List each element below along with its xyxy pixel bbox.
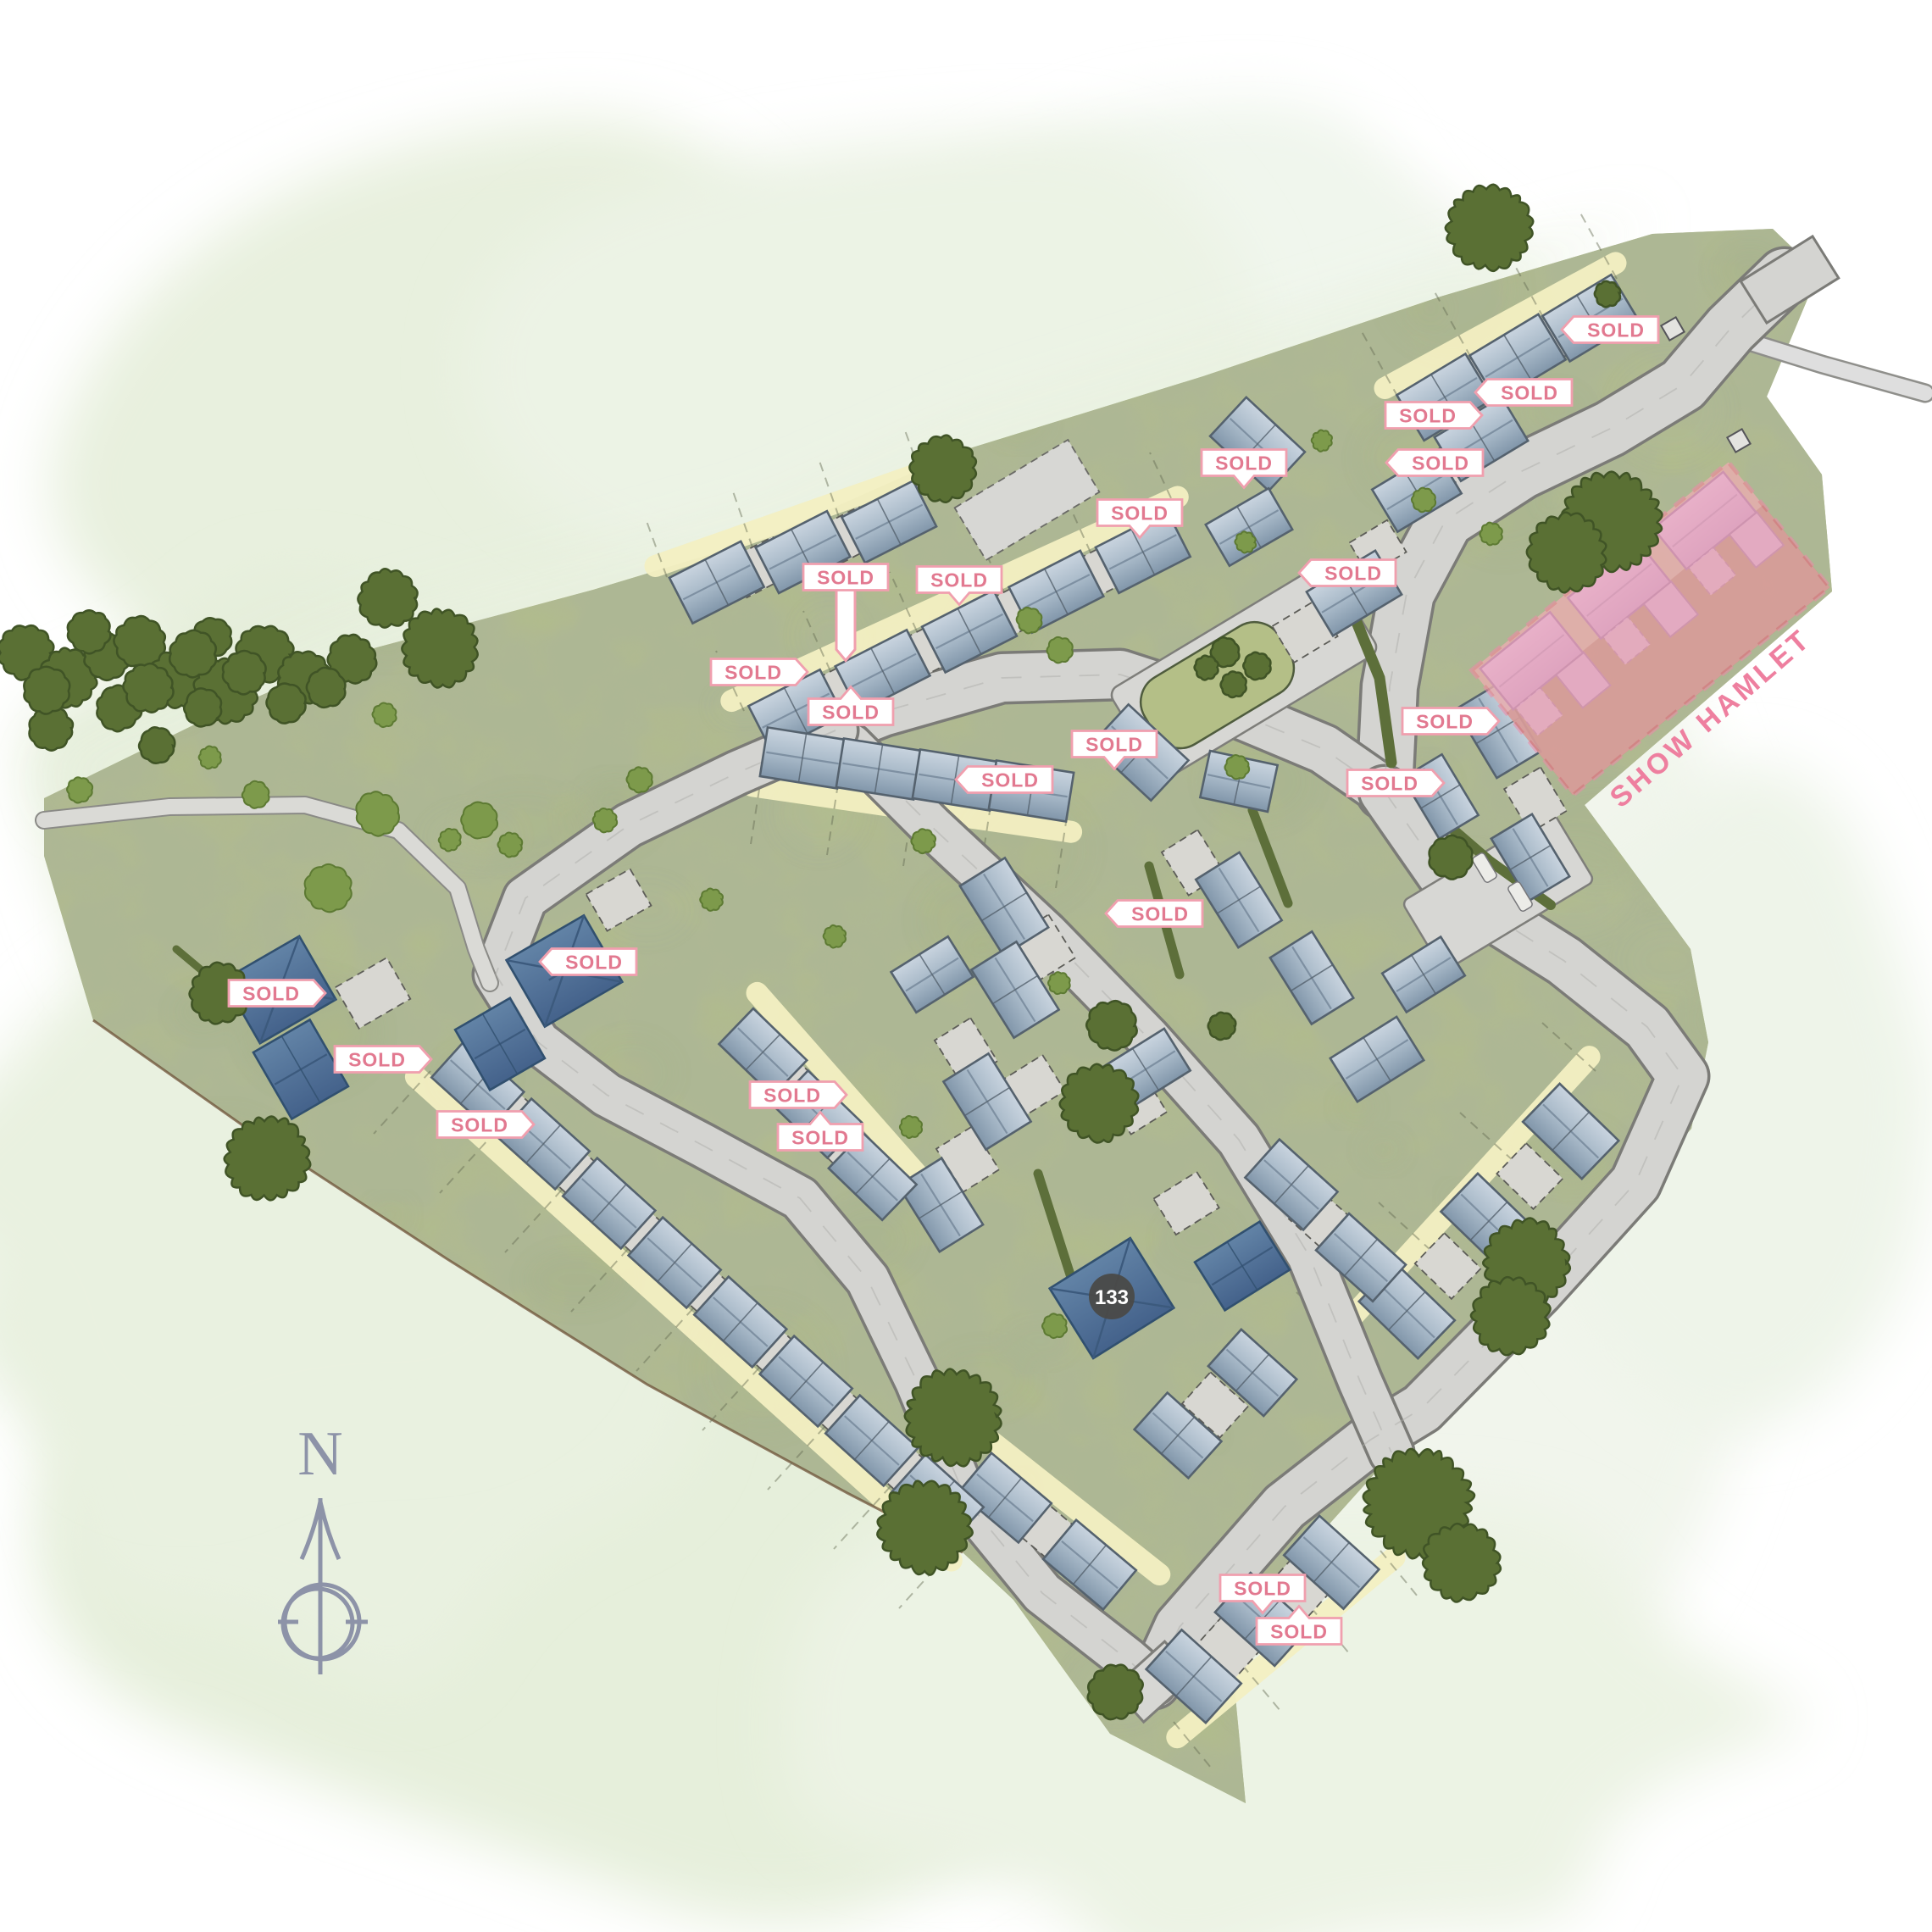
svg-text:SOLD: SOLD xyxy=(565,952,623,974)
svg-text:SOLD: SOLD xyxy=(791,1127,849,1149)
svg-text:SOLD: SOLD xyxy=(1399,405,1457,427)
svg-text:SOLD: SOLD xyxy=(1324,563,1382,585)
svg-text:SOLD: SOLD xyxy=(724,662,782,684)
svg-text:SOLD: SOLD xyxy=(348,1049,406,1071)
svg-text:SOLD: SOLD xyxy=(1501,382,1558,404)
svg-text:SOLD: SOLD xyxy=(981,769,1039,791)
svg-text:SOLD: SOLD xyxy=(1412,452,1469,475)
svg-text:SOLD: SOLD xyxy=(1131,903,1189,925)
svg-text:SOLD: SOLD xyxy=(242,983,300,1005)
svg-text:SOLD: SOLD xyxy=(1587,319,1645,341)
svg-text:SOLD: SOLD xyxy=(1270,1621,1328,1643)
svg-text:SOLD: SOLD xyxy=(930,569,988,591)
svg-text:SOLD: SOLD xyxy=(1111,502,1169,525)
svg-text:SOLD: SOLD xyxy=(1215,452,1273,475)
svg-text:SOLD: SOLD xyxy=(1085,734,1143,756)
svg-text:133: 133 xyxy=(1095,1286,1129,1309)
svg-text:SOLD: SOLD xyxy=(1234,1578,1291,1600)
svg-text:N: N xyxy=(297,1419,342,1489)
svg-text:SOLD: SOLD xyxy=(1416,711,1474,733)
svg-text:SOLD: SOLD xyxy=(817,567,874,589)
svg-text:SOLD: SOLD xyxy=(451,1114,508,1136)
svg-text:SOLD: SOLD xyxy=(1361,773,1418,795)
svg-text:SOLD: SOLD xyxy=(763,1085,821,1107)
svg-text:SOLD: SOLD xyxy=(822,702,880,724)
